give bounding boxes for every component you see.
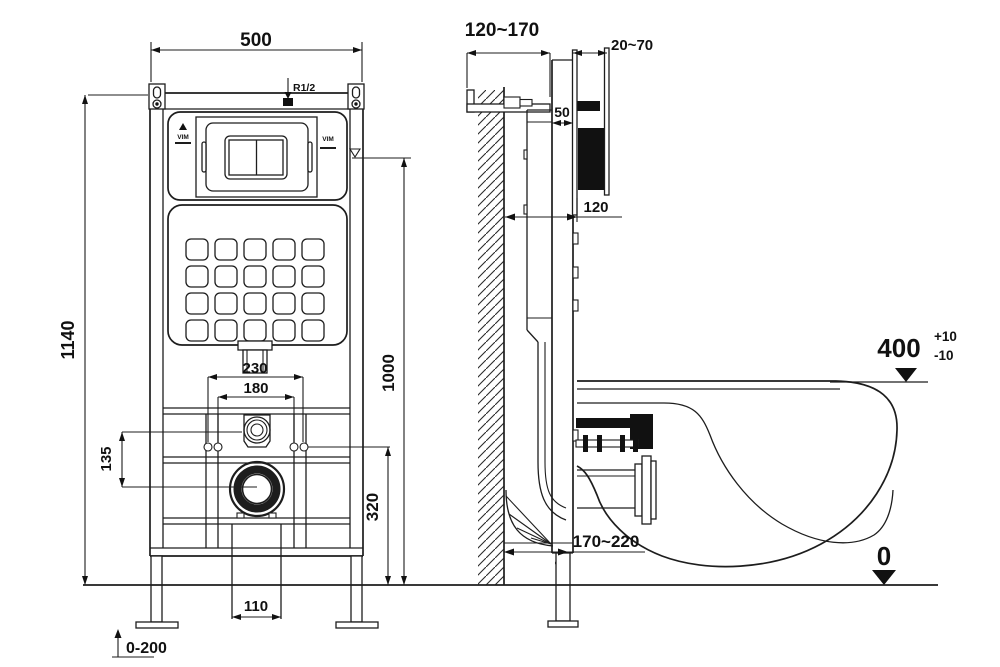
dim-label-1140: 1140 (58, 320, 78, 359)
dim-label-120: 120 (583, 199, 608, 216)
floor-outlet: 110 (232, 524, 281, 619)
dim-drain-height-320: 320 (363, 447, 388, 585)
dim-label-tol-minus: -10 (934, 348, 954, 363)
dim-label-180: 180 (243, 380, 268, 397)
dim-label-110: 110 (244, 598, 268, 615)
dim-label-120-170: 120~170 (465, 20, 540, 41)
dim-label-400: 400 (877, 333, 920, 363)
dim-label-0: 0 (877, 541, 891, 571)
dim-bolt-spacing: 230 180 (204, 360, 390, 451)
dim-label-50: 50 (554, 104, 570, 120)
installation-drawing: 500 1140 (0, 0, 1000, 667)
brand-right-label: VIM (322, 136, 334, 143)
dim-wall-offset: 120~170 (465, 20, 550, 97)
datum-mark-plate (350, 149, 360, 157)
floor-datum: 0 (872, 541, 896, 585)
cistern-profile (524, 110, 566, 520)
dim-label-tol-plus: +10 (934, 329, 957, 344)
dim-label-0-200: 0-200 (126, 640, 167, 657)
dim-foot-adjust: 0-200 (112, 629, 167, 657)
flush-buttons (225, 136, 287, 179)
dim-drain-reach: 170~220 (504, 532, 645, 556)
dim-label-170-220: 170~220 (573, 532, 640, 551)
dim-label-500: 500 (240, 30, 272, 51)
water-supply-connection: R1/2 (283, 78, 315, 106)
drain-socket (230, 462, 284, 518)
dim-label-320: 320 (363, 493, 382, 521)
drain-connector (577, 456, 656, 524)
dim-plate-depth: 20~70 (573, 37, 653, 54)
hanger-bracket-right (348, 84, 364, 109)
dim-height-1140: 1140 (58, 95, 148, 585)
mounting-studs (576, 414, 653, 452)
inlet-fitting (244, 415, 270, 447)
dim-frame-depth: 120 (505, 198, 622, 222)
drawing-canvas: 500 1140 (0, 0, 1000, 667)
hanger-bracket-left (149, 84, 165, 109)
supply-label: R1/2 (293, 82, 315, 94)
dim-rail-depth: 50 (552, 104, 573, 123)
wall-section (478, 87, 504, 585)
seat-height-datum: 400 +10 -10 (830, 329, 957, 382)
dim-label-1000: 1000 (379, 354, 398, 392)
dim-label-20-70: 20~70 (611, 37, 653, 54)
front-view: 500 1140 (58, 30, 411, 657)
dim-width-500: 500 (151, 30, 362, 82)
brand-left-label: VIM (177, 134, 189, 141)
dim-label-135: 135 (98, 446, 115, 471)
access-panel (168, 205, 347, 345)
side-view: 120~170 (465, 20, 957, 627)
flush-plate-side (573, 48, 610, 215)
dim-label-230: 230 (242, 360, 267, 377)
flush-plate-housing: VIM VIM (168, 112, 360, 200)
